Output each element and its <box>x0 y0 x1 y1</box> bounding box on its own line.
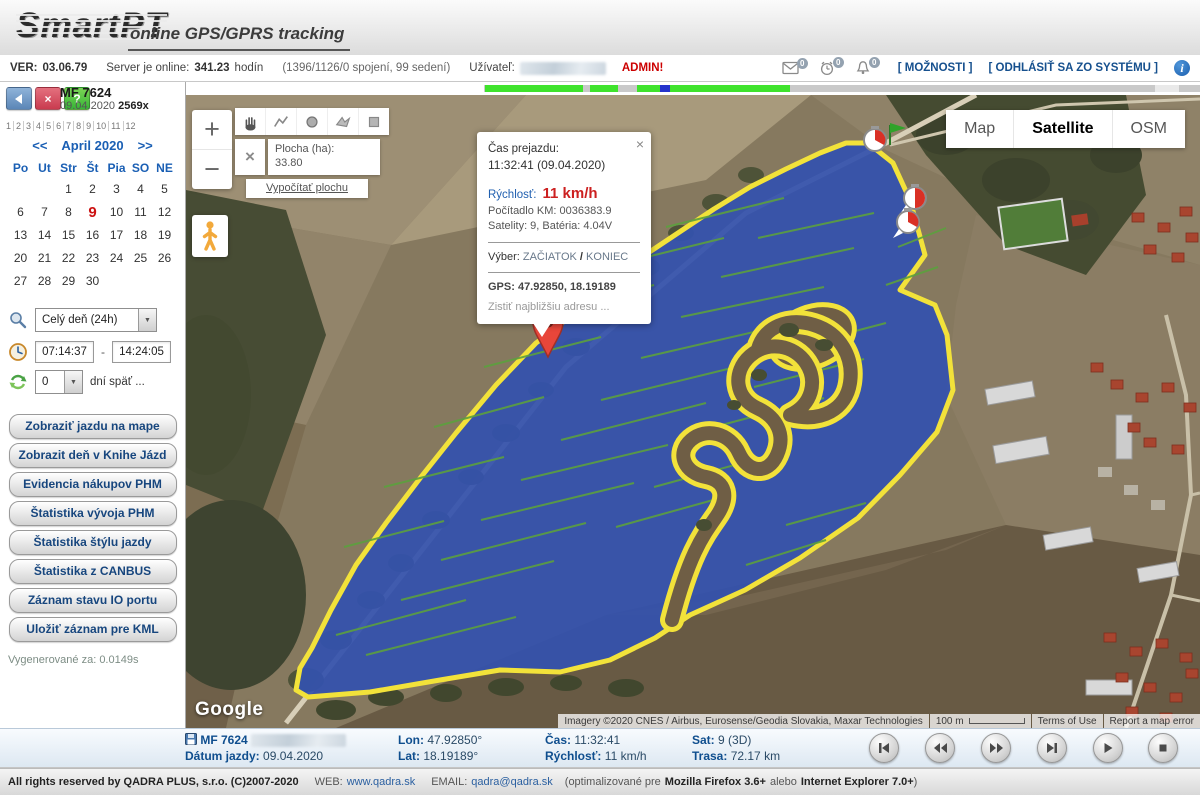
popup-odometer: Počítadlo KM: 0036383.9 <box>488 204 640 219</box>
area-label: Plocha (ha): <box>275 142 373 156</box>
bottom-device-name: MF 7624 <box>200 733 247 747</box>
canbus-statistics-button[interactable]: Štatistika z CANBUS <box>9 559 177 584</box>
skip-start-icon <box>877 741 891 755</box>
fuel-statistics-button[interactable]: Štatistika vývoja PHM <box>9 501 177 526</box>
play-icon <box>1101 741 1115 755</box>
calendar-day[interactable]: 20 <box>9 247 33 270</box>
calendar-day <box>9 178 33 201</box>
calendar-day-header: Pia <box>105 158 129 178</box>
info-icon[interactable]: i <box>1174 60 1190 76</box>
chevron-down-icon <box>138 309 156 331</box>
google-logo[interactable]: Google <box>195 699 263 721</box>
calendar-day[interactable]: 24 <box>105 247 129 270</box>
refresh-icon <box>8 372 28 392</box>
email-label: EMAIL: <box>431 776 467 788</box>
month-link[interactable]: 2 <box>14 121 24 131</box>
month-strip: 1 2 3 4 5 6 7 8 9 10 11 12 <box>4 121 138 131</box>
mail-icon[interactable]: 0 <box>782 61 810 75</box>
lat-value: 18.19189° <box>423 749 478 763</box>
calendar-day-header: Po <box>9 158 33 178</box>
report-map-error-link[interactable]: Report a map error <box>1104 714 1200 728</box>
device-date: 09.04.2020 <box>60 100 115 112</box>
popup-speed-label: Rýchlosť: <box>488 189 536 201</box>
calendar-prev-button[interactable]: << <box>32 138 47 153</box>
connections-info: (1396/1126/0 spojení, 99 sedení) <box>282 62 450 74</box>
satellites-value: 9 (3D) <box>718 733 751 747</box>
month-link[interactable]: 8 <box>74 121 84 131</box>
user-label: Užívateľ: <box>469 62 515 74</box>
calendar-day[interactable]: 18 <box>129 224 153 247</box>
calendar-day[interactable]: 5 <box>153 178 177 201</box>
pegman-icon <box>200 220 220 252</box>
scale-bar <box>969 718 1025 724</box>
calendar-day[interactable]: 6 <box>9 201 33 224</box>
rewind-icon <box>933 741 948 755</box>
calendar-day[interactable]: 7 <box>33 201 57 224</box>
calendar-day[interactable]: 10 <box>105 201 129 224</box>
terms-link[interactable]: Terms of Use <box>1032 714 1103 728</box>
calendar-day[interactable]: 14 <box>33 224 57 247</box>
calendar-day[interactable]: 16 <box>81 224 105 247</box>
save-kml-button[interactable]: Uložiť záznam pre KML <box>9 617 177 642</box>
rewind-button[interactable] <box>925 733 955 763</box>
track-timeline-bar[interactable] <box>484 85 1200 92</box>
calendar-day-selected[interactable]: 9 <box>81 201 105 224</box>
time-label: Čas: <box>545 733 571 747</box>
calendar-day[interactable]: 25 <box>129 247 153 270</box>
calendar-day <box>129 270 153 293</box>
calendar-day-header: Št <box>81 158 105 178</box>
calendar-day-header: Ut <box>33 158 57 178</box>
skip-start-button[interactable] <box>869 733 899 763</box>
app-tagline: online GPS/GPRS tracking <box>128 24 350 51</box>
map-type-map[interactable]: Map <box>946 110 1014 148</box>
options-link[interactable]: [ MOŽNOSTI ] <box>898 62 973 74</box>
back-button[interactable] <box>6 87 32 110</box>
calendar-day[interactable]: 3 <box>105 178 129 201</box>
optimized-suffix: ) <box>914 776 918 788</box>
web-link[interactable]: www.qadra.sk <box>347 776 415 788</box>
status-bar: VER: 03.06.79 Server je online: 341.23 h… <box>0 55 1200 82</box>
draw-toolbar <box>235 108 389 135</box>
calendar-day[interactable]: 12 <box>153 201 177 224</box>
bell-count-badge: 0 <box>869 57 880 68</box>
satellites-label: Sat: <box>692 733 715 747</box>
month-link[interactable]: 1 <box>4 121 14 131</box>
month-link[interactable]: 3 <box>24 121 34 131</box>
calendar-day[interactable]: 27 <box>9 270 33 293</box>
popup-select-separator: / <box>580 251 583 263</box>
trip-date-label: Dátum jazdy: <box>185 749 260 763</box>
optimized-mid: alebo <box>770 776 797 788</box>
speed-label: Rýchlosť: <box>545 749 601 763</box>
track-point-popup: × Čas prejazdu: 11:32:41 (09.04.2020) Rý… <box>477 132 651 324</box>
copyright-text: All rights reserved by QADRA PLUS, s.r.o… <box>8 776 299 788</box>
popup-close-icon[interactable]: × <box>636 135 644 155</box>
range-select-value: Celý deň (24h) <box>36 309 138 331</box>
version-label: VER: <box>10 62 37 74</box>
map-type-satellite[interactable]: Satellite <box>1014 110 1112 148</box>
time-value: 11:32:41 <box>574 733 620 747</box>
month-link[interactable]: 9 <box>84 121 94 131</box>
calendar-next-button[interactable]: >> <box>138 138 153 153</box>
popup-select-start-link[interactable]: ZAČIATOK <box>523 251 577 263</box>
calendar-day[interactable]: 28 <box>33 270 57 293</box>
area-value: 33.80 <box>275 156 373 170</box>
calendar-day[interactable]: 23 <box>81 247 105 270</box>
speed-value: 11 km/h <box>605 749 647 763</box>
device-record-count: 2569x <box>118 100 149 112</box>
calendar-day[interactable]: 4 <box>129 178 153 201</box>
rectangle-tool[interactable] <box>359 108 389 135</box>
calendar: Po Ut Str Št Pia SO NE 1 2 3 4 5 6 7 8 9… <box>0 158 185 293</box>
search-icon <box>8 310 28 330</box>
mail-count-badge: 0 <box>797 58 808 69</box>
time-from-input[interactable]: 07:14:37 <box>35 341 94 363</box>
timer-icon[interactable]: 0 <box>819 60 846 76</box>
skip-end-icon <box>1045 741 1059 755</box>
web-label: WEB: <box>315 776 343 788</box>
redacted-username <box>520 62 606 75</box>
fast-forward-button[interactable] <box>981 733 1011 763</box>
calendar-day[interactable]: 22 <box>57 247 81 270</box>
month-link[interactable]: 4 <box>34 121 44 131</box>
calendar-day-header: SO <box>129 158 153 178</box>
calendar-day[interactable]: 1 <box>57 178 81 201</box>
sidebar: × ? MF 7624 09.04.2020 2569x 1 2 3 4 5 6… <box>0 82 186 728</box>
map-type-osm[interactable]: OSM <box>1113 110 1185 148</box>
clock-icon <box>8 342 28 362</box>
chevron-down-icon <box>64 371 82 393</box>
scale-label: 100 m <box>936 716 964 727</box>
month-link[interactable]: 6 <box>54 121 64 131</box>
show-day-logbook-button[interactable]: Zobrazit deň v Knihe Jázd <box>9 443 177 468</box>
clear-area-button[interactable]: × <box>235 139 265 175</box>
area-result-box: Plocha (ha): 33.80 <box>268 139 380 175</box>
play-button[interactable] <box>1093 733 1123 763</box>
main-area: + − × Plocha (ha): 33.80 <box>186 82 1200 728</box>
optimized-prefix: (optimalizované pre <box>565 776 661 788</box>
version-value: 03.06.79 <box>42 62 87 74</box>
popup-satellites: Satelity: 9, Batéria: 4.04V <box>488 219 640 234</box>
calendar-day[interactable]: 13 <box>9 224 33 247</box>
trip-date-value: 09.04.2020 <box>263 749 323 763</box>
month-link[interactable]: 12 <box>124 121 138 131</box>
calendar-day[interactable]: 2 <box>81 178 105 201</box>
ie-text: Internet Explorer 7.0+ <box>801 776 914 788</box>
app-header: SmartPT online GPS/GPRS tracking <box>0 0 1200 56</box>
map-attribution: Imagery ©2020 CNES / Airbus, Eurosense/G… <box>557 714 1200 728</box>
skip-end-button[interactable] <box>1037 733 1067 763</box>
zoom-control: + − <box>192 110 232 189</box>
month-link[interactable]: 5 <box>44 121 54 131</box>
polyline-tool[interactable] <box>266 108 297 135</box>
calendar-day[interactable]: 30 <box>81 270 105 293</box>
range-select[interactable]: Celý deň (24h) <box>35 308 157 332</box>
time-range-dash: - <box>101 345 105 359</box>
email-link[interactable]: qadra@qadra.sk <box>471 776 553 788</box>
page-footer: All rights reserved by QADRA PLUS, s.r.o… <box>0 768 1200 795</box>
popup-address-link[interactable]: Zistiť najbližšiu adresu ... <box>488 300 640 315</box>
popup-datetime: 11:32:41 (09.04.2020) <box>488 157 640 174</box>
lon-label: Lon: <box>398 733 424 747</box>
fuel-purchases-button[interactable]: Evidencia nákupov PHM <box>9 472 177 497</box>
stop-icon <box>1156 741 1170 755</box>
calendar-day[interactable]: 21 <box>33 247 57 270</box>
io-port-log-button[interactable]: Záznam stavu IO portu <box>9 588 177 613</box>
days-back-label: dní späť ... <box>90 376 145 388</box>
arrow-left-icon <box>13 93 25 105</box>
popup-title: Čas prejazdu: <box>488 141 640 157</box>
circle-tool[interactable] <box>297 108 328 135</box>
polygon-tool[interactable] <box>328 108 359 135</box>
stop-button[interactable] <box>1148 733 1178 763</box>
month-link[interactable]: 7 <box>64 121 74 131</box>
firefox-text: Mozilla Firefox 3.6+ <box>665 776 766 788</box>
fast-forward-icon <box>989 741 1004 755</box>
generated-time: Vygenerované za: 0.0149s <box>8 654 138 666</box>
save-disk-icon[interactable] <box>185 733 197 745</box>
track-info-bar: MF 7624 Dátum jazdy: 09.04.2020 Lon: 47.… <box>0 728 1200 768</box>
lat-label: Lat: <box>398 749 420 763</box>
calendar-day-header: Str <box>57 158 81 178</box>
calendar-day <box>33 178 57 201</box>
show-trip-on-map-button[interactable]: Zobraziť jazdu na mape <box>9 414 177 439</box>
popup-speed-value: 11 km/h <box>542 185 597 202</box>
popup-select-end-link[interactable]: KONIEC <box>586 251 628 263</box>
month-link[interactable]: 10 <box>94 121 109 131</box>
timeline-position-marker[interactable] <box>660 85 670 92</box>
popup-gps: GPS: 47.92850, 18.19189 <box>488 280 640 295</box>
calendar-day[interactable]: 8 <box>57 201 81 224</box>
redacted-device-info <box>251 734 346 747</box>
server-hours: 341.23 <box>194 62 229 74</box>
server-status-label: Server je online: <box>106 62 189 74</box>
zoom-in-button[interactable]: + <box>192 110 232 150</box>
calendar-day <box>105 270 129 293</box>
imagery-attribution: Imagery ©2020 CNES / Airbus, Eurosense/G… <box>558 714 928 728</box>
calendar-day[interactable]: 26 <box>153 247 177 270</box>
calendar-day-header: NE <box>153 158 177 178</box>
calendar-day[interactable]: 15 <box>57 224 81 247</box>
popup-select-label: Výber: <box>488 251 520 263</box>
device-subtitle: 09.04.2020 2569x <box>60 100 149 112</box>
track-timeline <box>186 82 1200 95</box>
calendar-day <box>153 270 177 293</box>
pan-hand-tool[interactable] <box>235 108 266 135</box>
calendar-day[interactable]: 17 <box>105 224 129 247</box>
server-hours-unit: hodín <box>235 62 264 74</box>
distance-value: 72.17 km <box>731 749 780 763</box>
zoom-out-button[interactable]: − <box>192 150 232 189</box>
logout-link[interactable]: [ ODHLÁSIŤ SA ZO SYSTÉMU ] <box>988 62 1158 74</box>
calendar-day[interactable]: 11 <box>129 201 153 224</box>
bell-icon[interactable]: 0 <box>855 60 882 76</box>
device-name: MF 7624 <box>60 85 111 100</box>
driving-style-statistics-button[interactable]: Štatistika štýlu jazdy <box>9 530 177 555</box>
distance-label: Trasa: <box>692 749 727 763</box>
days-back-value: 0 <box>36 371 64 393</box>
compute-area-link[interactable]: Vypočítať plochu <box>266 182 348 194</box>
time-to-input[interactable]: 14:24:05 <box>112 341 171 363</box>
admin-badge: ADMIN! <box>622 62 664 74</box>
days-back-select[interactable]: 0 <box>35 370 83 394</box>
calendar-title: April 2020 <box>61 138 123 153</box>
close-device-button[interactable]: × <box>35 87 61 110</box>
lon-value: 47.92850° <box>427 733 482 747</box>
pegman-control[interactable] <box>192 215 228 257</box>
calendar-day[interactable]: 19 <box>153 224 177 247</box>
month-link[interactable]: 11 <box>109 121 123 131</box>
calendar-day[interactable]: 29 <box>57 270 81 293</box>
sports-field <box>998 199 1067 249</box>
map-canvas[interactable]: + − × Plocha (ha): 33.80 <box>186 95 1200 728</box>
timer-count-badge: 0 <box>833 57 844 68</box>
map-type-switcher: Map Satellite OSM <box>946 110 1185 148</box>
